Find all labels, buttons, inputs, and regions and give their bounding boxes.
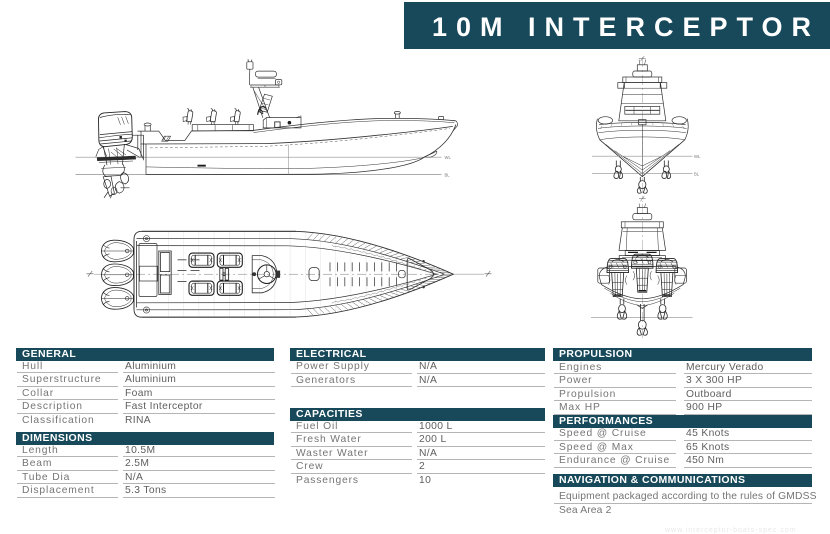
svg-text:WL: WL xyxy=(445,155,452,160)
svg-text:BL: BL xyxy=(445,172,451,177)
svg-text:BL: BL xyxy=(694,171,700,176)
svg-text:WL: WL xyxy=(694,154,701,159)
